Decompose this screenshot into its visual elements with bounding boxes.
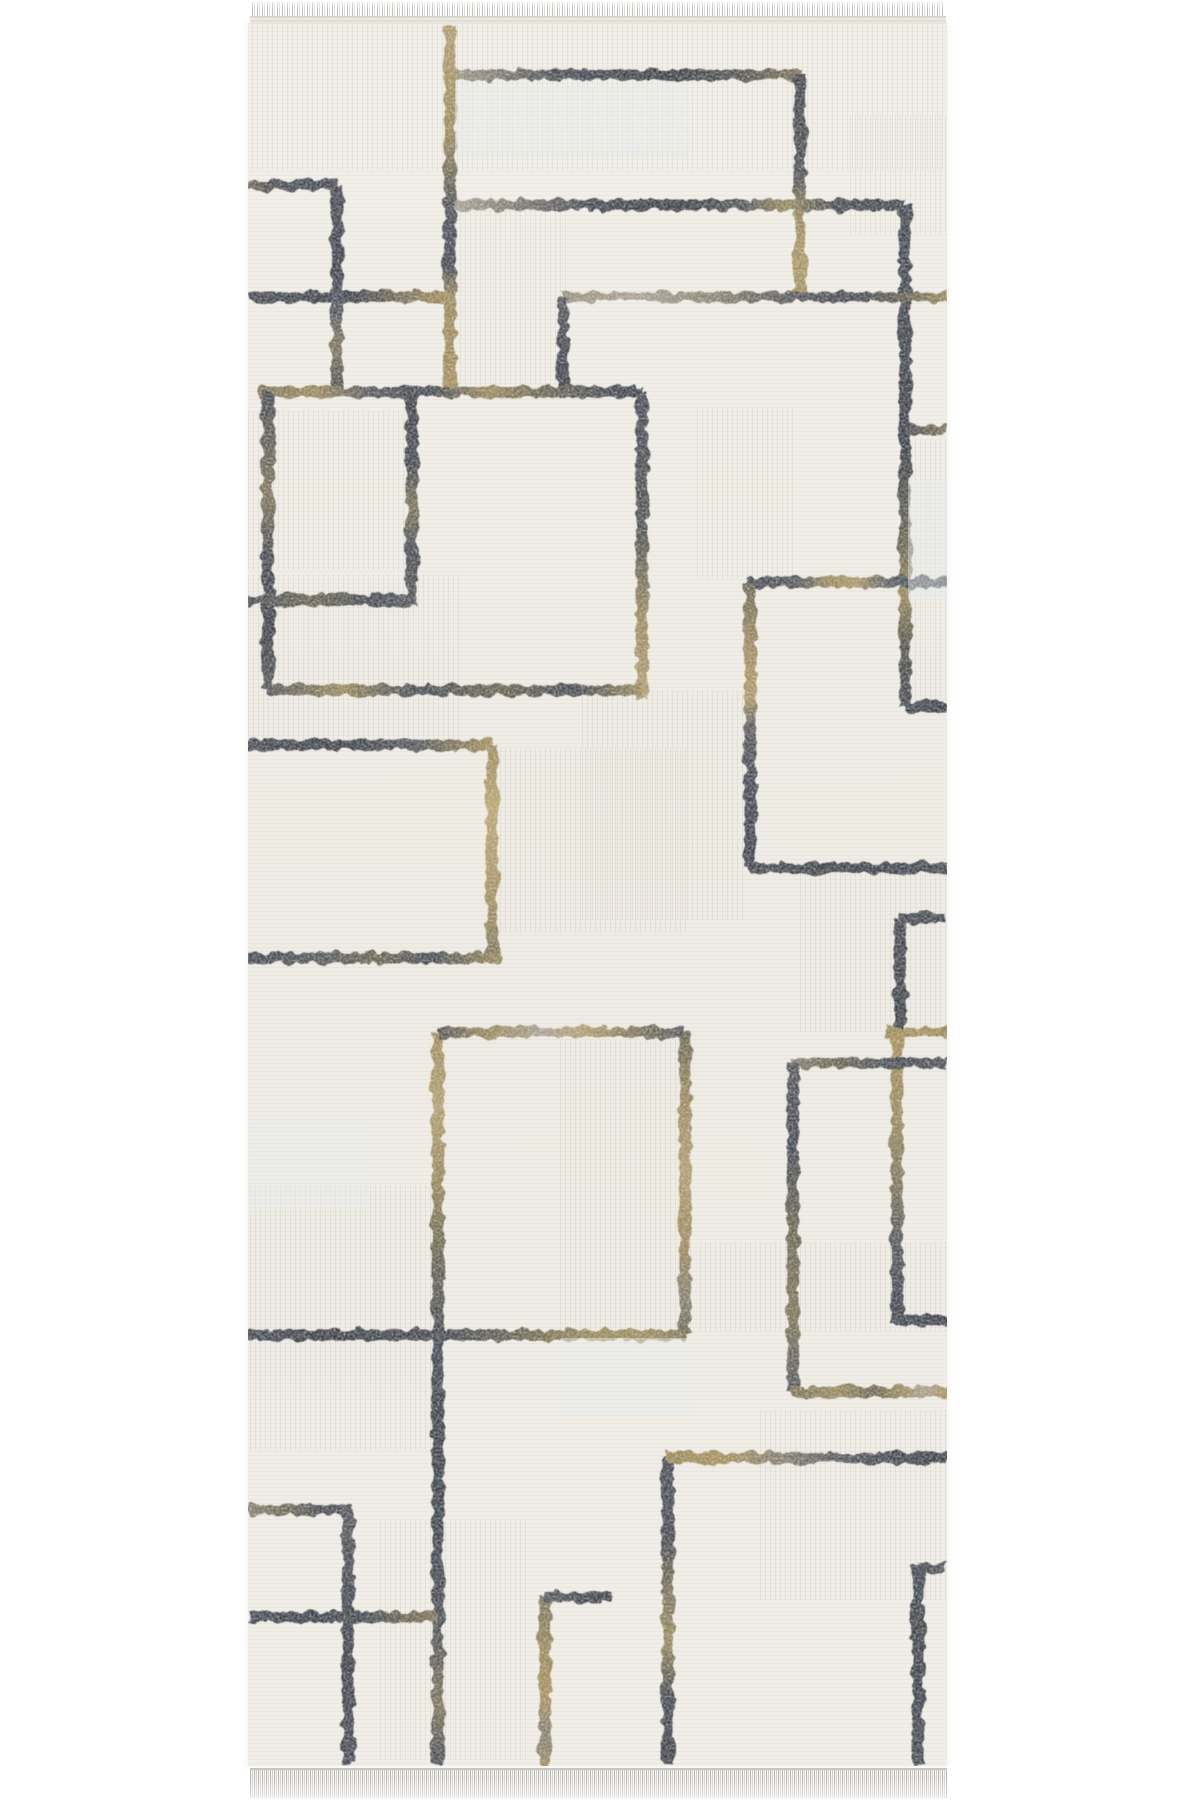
shade-tint-patch <box>560 1338 690 1416</box>
rib-texture-patch <box>760 1410 947 1600</box>
rib-texture-patch <box>697 408 797 578</box>
rib-texture-patch <box>248 575 463 745</box>
fringe-bottom <box>250 1768 947 1798</box>
rib-texture-patch <box>560 1040 695 1330</box>
rib-texture-patch <box>500 748 690 933</box>
rug-product-photo <box>0 0 1200 1800</box>
rib-texture-patch <box>850 115 947 235</box>
rib-texture-patch <box>800 872 947 1032</box>
rib-texture-patch <box>380 1520 530 1760</box>
shade-tint-patch <box>908 480 947 600</box>
rib-texture-patch <box>700 1242 947 1332</box>
fringe-top <box>252 2 944 16</box>
shade-tint-patch <box>455 85 690 155</box>
rib-texture-patch <box>250 1185 435 1450</box>
rib-texture-patch <box>460 210 570 385</box>
rib-texture-patch <box>248 410 418 570</box>
shade-tint-patch <box>248 1120 368 1210</box>
